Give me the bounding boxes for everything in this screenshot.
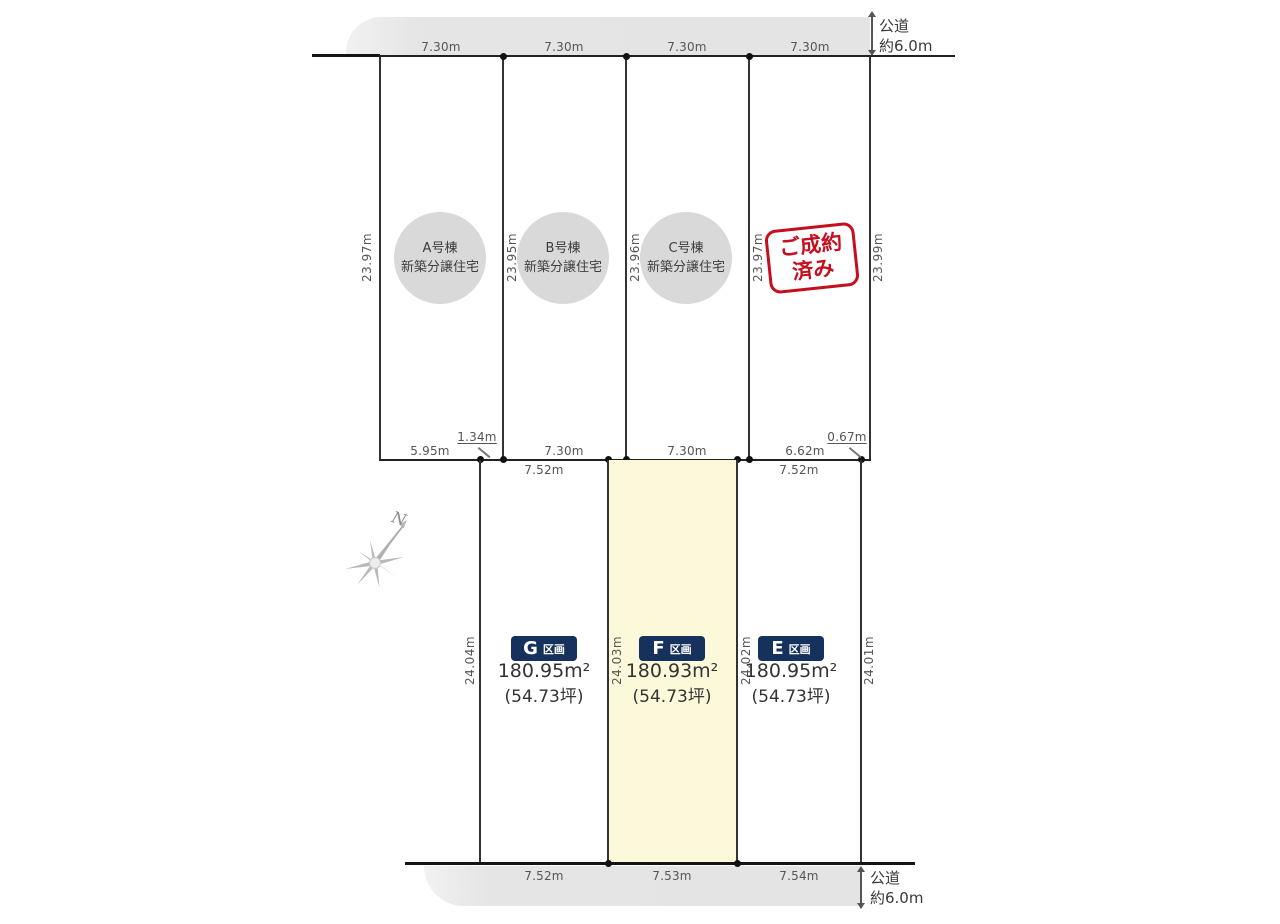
dim-bottom-f: 7.53m — [641, 869, 703, 883]
plot-f-suffix: 区画 — [670, 644, 692, 655]
plot-e-suffix: 区画 — [789, 644, 811, 655]
upper-boundary-bc — [625, 57, 627, 460]
junction-dot — [734, 860, 741, 867]
upper-boundary-left — [379, 57, 381, 460]
plot-a-building: A号棟 — [423, 239, 458, 259]
upper-depth-left: 23.97m — [360, 222, 375, 292]
plot-e-letter: E — [771, 640, 783, 658]
junction-dot — [605, 860, 612, 867]
bottom-road-arrowhead-up — [857, 866, 865, 872]
plot-e-tsubo: (54.73坪) — [721, 682, 861, 707]
plot-c-building: C号棟 — [668, 239, 703, 259]
dim-lower-top-e: 7.52m — [768, 463, 830, 477]
plot-a-circle: A号棟 新築分譲住宅 — [394, 212, 486, 304]
upper-depth-cd: 23.97m — [751, 222, 766, 292]
plot-e-area: 180.95m² — [721, 660, 861, 682]
junction-dot — [623, 53, 630, 60]
sold-stamp: ご成約 済み — [764, 221, 860, 294]
upper-depth-right: 23.99m — [871, 222, 886, 292]
top-road-arrowhead-down — [868, 50, 876, 56]
dim-top-c: 7.30m — [656, 40, 718, 54]
plot-b-type: 新築分譲住宅 — [524, 258, 602, 278]
dim-bottom-g: 7.52m — [513, 869, 575, 883]
top-road-arrowhead-up — [868, 11, 876, 17]
dim-mid-a-right: 1.34m — [446, 430, 508, 444]
bottom-road-width-arrow — [860, 868, 862, 908]
sold-stamp-line2: 済み — [791, 256, 835, 285]
dim-top-b: 7.30m — [533, 40, 595, 54]
lower-depth-right: 24.01m — [862, 625, 877, 695]
bottom-road-label: 公道 約6.0m — [870, 869, 923, 909]
top-road-line-thick — [312, 54, 380, 57]
dim-mid-b: 7.30m — [533, 444, 595, 458]
plot-g-area: 180.95m² — [474, 660, 614, 682]
sold-stamp-line1: ご成約 — [778, 230, 843, 261]
junction-dot — [746, 456, 753, 463]
dim-bottom-e: 7.54m — [768, 869, 830, 883]
plot-c-type: 新築分譲住宅 — [647, 258, 725, 278]
dim-lower-top-g: 7.52m — [513, 463, 575, 477]
plot-f-badge: F 区画 — [639, 636, 705, 661]
dim-top-a: 7.30m — [410, 40, 472, 54]
plot-g-suffix: 区画 — [543, 644, 565, 655]
plot-g-tsubo: (54.73坪) — [474, 682, 614, 707]
plot-e-badge: E 区画 — [758, 636, 824, 661]
plot-f-letter: F — [652, 640, 664, 658]
upper-boundary-cd — [748, 57, 750, 460]
leader-line — [849, 447, 861, 458]
dim-mid-d-right: 0.67m — [816, 430, 878, 444]
top-road-width-arrow — [871, 13, 873, 55]
bottom-road-label-line2: 約6.0m — [870, 889, 923, 909]
top-road-label: 公道 約6.0m — [879, 17, 932, 57]
dim-mid-a-left: 5.95m — [399, 444, 461, 458]
top-road-label-line2: 約6.0m — [879, 37, 932, 57]
junction-dot — [500, 456, 507, 463]
dim-mid-d: 6.62m — [774, 444, 836, 458]
junction-dot — [746, 53, 753, 60]
plot-c-circle: C号棟 新築分譲住宅 — [640, 212, 732, 304]
dim-mid-c: 7.30m — [656, 444, 718, 458]
bottom-road-line — [405, 862, 915, 865]
plot-a-type: 新築分譲住宅 — [401, 258, 479, 278]
top-road-label-line1: 公道 — [879, 17, 932, 37]
bottom-road-arrowhead-down — [857, 903, 865, 909]
junction-dot — [500, 53, 507, 60]
dim-top-d: 7.30m — [779, 40, 841, 54]
site-plan-diagram: 公道 約6.0m 7.30m 7.30m 7.30m 7.30m 23.97m … — [0, 0, 1280, 924]
plot-b-building: B号棟 — [546, 239, 581, 259]
plot-b-circle: B号棟 新築分譲住宅 — [517, 212, 609, 304]
plot-g-letter: G — [523, 640, 538, 658]
plot-g-badge: G 区画 — [511, 636, 577, 661]
upper-boundary-ab — [502, 57, 504, 460]
bottom-road-label-line1: 公道 — [870, 869, 923, 889]
